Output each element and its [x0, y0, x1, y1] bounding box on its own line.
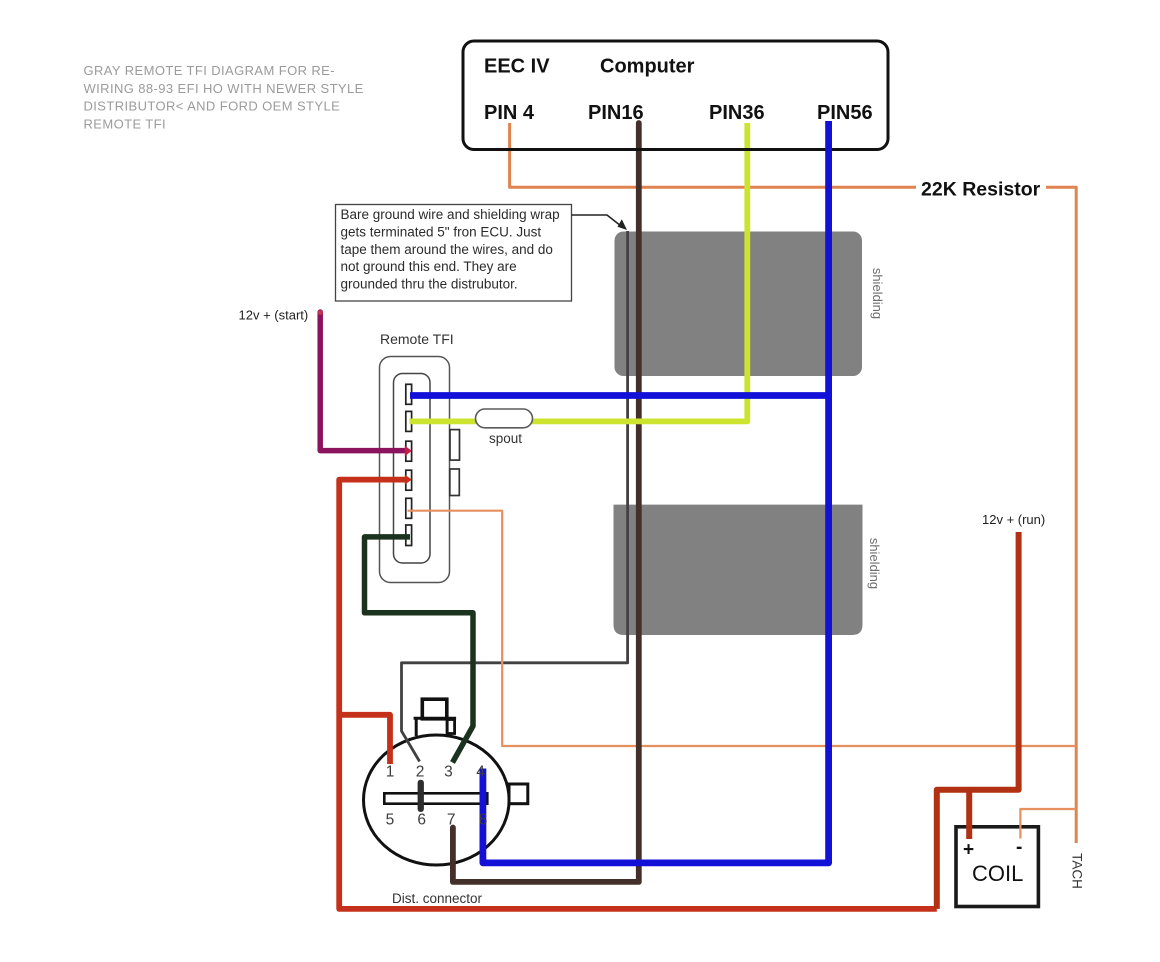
svg-text:4: 4 [476, 764, 485, 781]
svg-text:Bare ground wire and shielding: Bare ground wire and shielding wrap [341, 207, 560, 222]
svg-text:tape them around the wires, an: tape them around the wires, and do [341, 242, 553, 257]
svg-text:Computer: Computer [600, 56, 695, 78]
svg-text:3: 3 [444, 764, 453, 781]
svg-text:shielding: shielding [870, 268, 885, 319]
svg-text:5: 5 [386, 812, 395, 829]
svg-text:Dist. connector: Dist. connector [392, 891, 483, 906]
svg-text:COIL: COIL [972, 861, 1023, 886]
svg-text:Remote TFI: Remote TFI [380, 331, 454, 347]
svg-text:2: 2 [416, 764, 425, 781]
svg-text:WIRING 88-93 EFI HO WITH NEWER: WIRING 88-93 EFI HO WITH NEWER STYLE [84, 81, 364, 96]
svg-text:+: + [963, 840, 974, 861]
svg-text:PIN 4: PIN 4 [484, 102, 535, 124]
svg-text:TACH: TACH [1070, 853, 1085, 889]
svg-text:not ground this end. They are: not ground this end. They are [341, 259, 517, 274]
svg-text:8: 8 [479, 812, 488, 829]
svg-text:DISTRIBUTOR< AND FORD OEM STYL: DISTRIBUTOR< AND FORD OEM STYLE [84, 99, 341, 114]
svg-text:-: - [1016, 837, 1022, 858]
svg-text:gets terminated 5" fron ECU. J: gets terminated 5" fron ECU. Just [341, 224, 542, 239]
svg-text:PIN36: PIN36 [709, 102, 765, 124]
svg-text:REMOTE TFI: REMOTE TFI [84, 116, 166, 131]
svg-text:12v + (start): 12v + (start) [239, 308, 309, 323]
svg-text:shielding: shielding [867, 538, 882, 589]
svg-text:12v + (run): 12v + (run) [982, 512, 1045, 527]
svg-text:grounded thru the distrubutor.: grounded thru the distrubutor. [341, 277, 518, 292]
svg-text:GRAY REMOTE TFI DIAGRAM FOR RE: GRAY REMOTE TFI DIAGRAM FOR RE- [84, 63, 335, 78]
svg-text:EEC IV: EEC IV [484, 56, 550, 78]
svg-text:PIN16: PIN16 [588, 102, 644, 124]
svg-text:PIN56: PIN56 [817, 102, 873, 124]
svg-text:22K Resistor: 22K Resistor [921, 179, 1041, 201]
svg-text:1: 1 [386, 764, 395, 781]
svg-text:7: 7 [447, 812, 456, 829]
svg-text:spout: spout [489, 431, 522, 446]
svg-text:6: 6 [417, 812, 426, 829]
